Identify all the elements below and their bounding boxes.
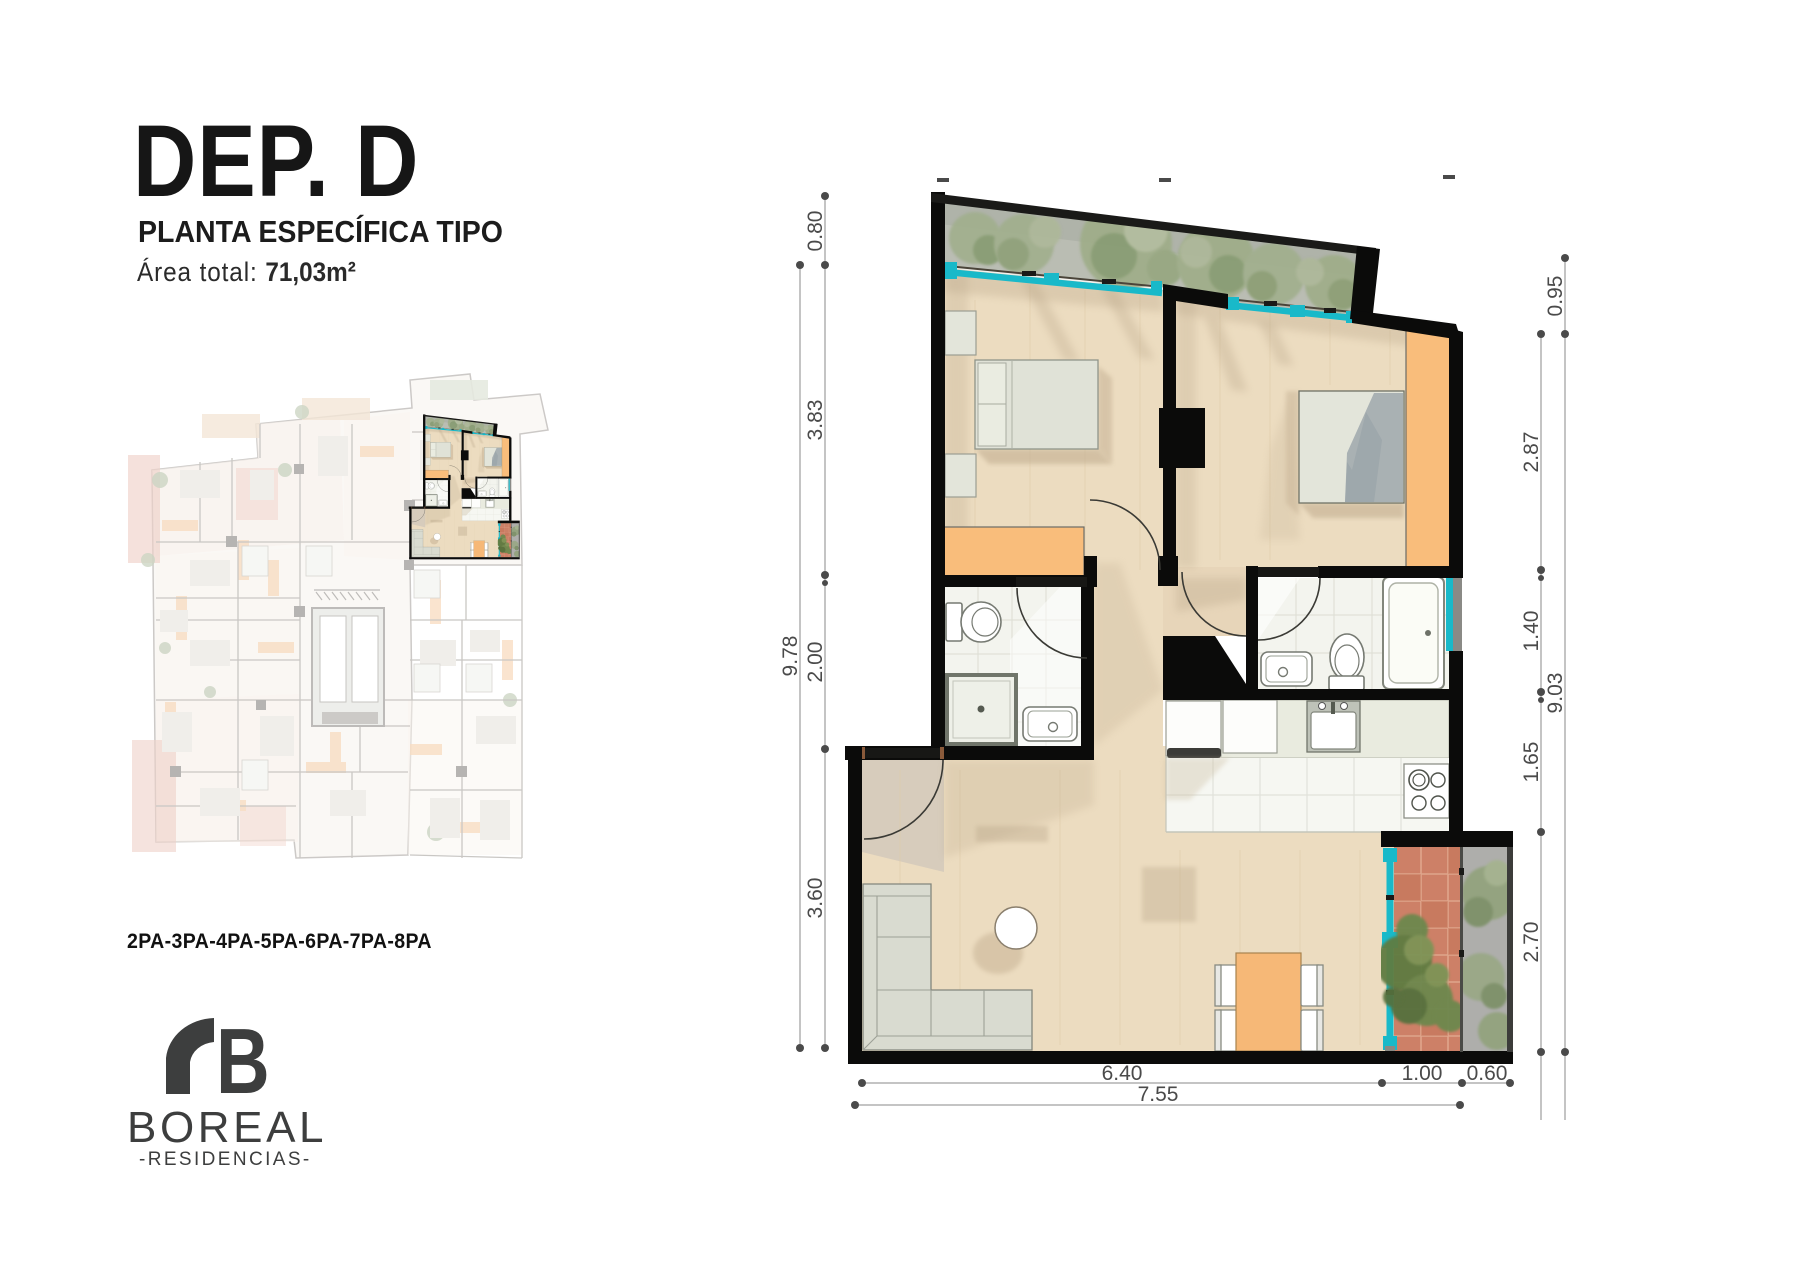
svg-text:0.80: 0.80: [804, 211, 827, 252]
svg-text:9.03: 9.03: [1544, 673, 1567, 714]
svg-text:1.00: 1.00: [1402, 1062, 1443, 1085]
svg-text:0.60: 0.60: [1467, 1062, 1508, 1085]
svg-text:9.78: 9.78: [779, 636, 802, 677]
svg-text:6.40: 6.40: [1102, 1062, 1143, 1085]
svg-text:0.95: 0.95: [1544, 276, 1567, 317]
svg-text:2.70: 2.70: [1520, 922, 1543, 963]
svg-text:1.65: 1.65: [1520, 742, 1543, 783]
svg-text:1.40: 1.40: [1520, 611, 1543, 652]
svg-text:2.87: 2.87: [1520, 432, 1543, 473]
svg-text:2.00: 2.00: [804, 642, 827, 683]
svg-text:3.60: 3.60: [804, 878, 827, 919]
svg-text:3.83: 3.83: [804, 400, 827, 441]
svg-text:7.55: 7.55: [1138, 1083, 1179, 1106]
